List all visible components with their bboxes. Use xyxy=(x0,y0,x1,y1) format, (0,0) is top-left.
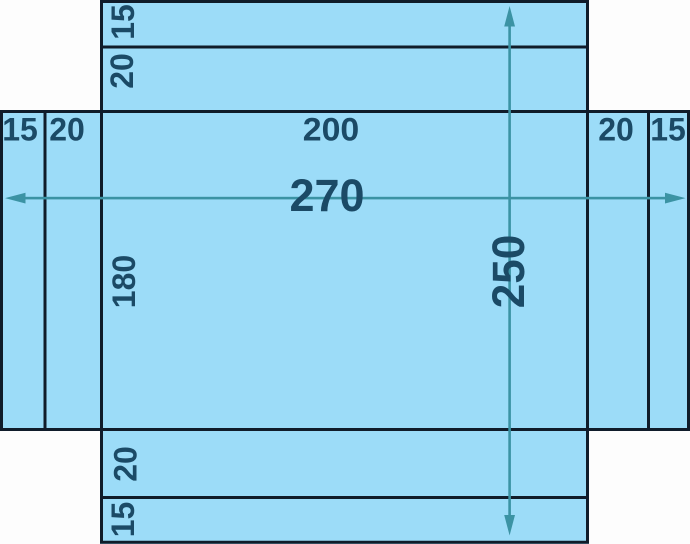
svg-text:20: 20 xyxy=(104,53,140,89)
svg-text:250: 250 xyxy=(483,235,534,309)
svg-text:200: 200 xyxy=(303,112,360,148)
svg-text:180: 180 xyxy=(106,255,142,308)
svg-text:20: 20 xyxy=(49,112,85,148)
svg-text:15: 15 xyxy=(650,112,686,148)
svg-text:20: 20 xyxy=(598,112,634,148)
svg-text:20: 20 xyxy=(108,446,144,482)
svg-text:270: 270 xyxy=(289,170,364,221)
svg-text:15: 15 xyxy=(105,4,141,40)
svg-text:15: 15 xyxy=(105,502,141,538)
svg-text:15: 15 xyxy=(2,112,38,148)
